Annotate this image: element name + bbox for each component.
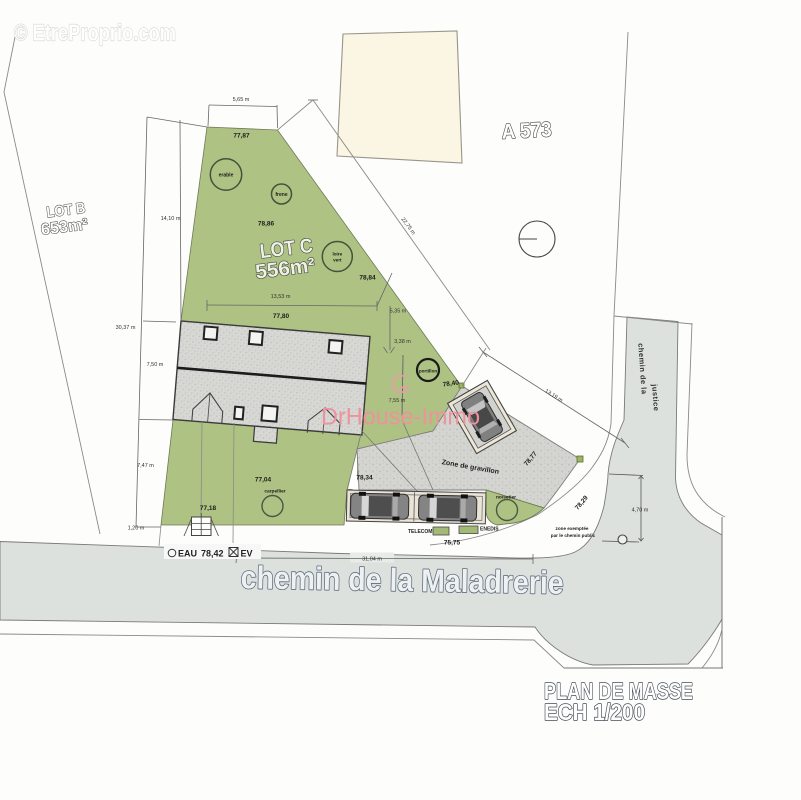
svg-text:portillon: portillon [419,369,438,374]
svg-text:7,47 m: 7,47 m [137,463,154,469]
svg-text:77,80: 77,80 [273,313,290,320]
svg-text:77,04: 77,04 [255,477,272,484]
svg-text:chemin de la Maladrerie: chemin de la Maladrerie [240,559,564,601]
svg-text:13,53 m: 13,53 m [271,294,291,300]
svg-text:A 573: A 573 [501,118,552,144]
svg-text:ENEDIS: ENEDIS [480,527,499,533]
svg-text:1,20 m: 1,20 m [128,526,145,532]
svg-text:4,70 m: 4,70 m [632,508,649,514]
svg-text:vert: vert [333,258,342,263]
svg-text:EAU: EAU [178,549,197,559]
svg-text:5,35 m: 5,35 m [390,309,407,315]
svg-text:loire: loire [332,252,342,257]
svg-text:3,38 m: 3,38 m [394,339,411,345]
svg-text:14,10 m: 14,10 m [161,216,181,222]
svg-text:carpellier: carpellier [264,489,285,495]
svg-text:noisetier: noisetier [496,495,516,501]
svg-text:30,37 m: 30,37 m [116,325,136,331]
svg-text:78,42: 78,42 [201,549,224,559]
svg-text:zone exemptée: zone exemptée [556,526,589,531]
svg-text:77,87: 77,87 [233,133,250,140]
svg-text:77,18: 77,18 [200,505,217,512]
svg-text:© EtreProprio.com: © EtreProprio.com [14,20,176,46]
svg-text:78,34: 78,34 [356,475,373,482]
svg-text:75,75: 75,75 [444,540,461,547]
svg-text:ECH 1/200: ECH 1/200 [544,699,645,725]
svg-text:EV: EV [241,549,253,559]
svg-text:erable: erable [219,173,234,179]
svg-text:TELECOM: TELECOM [408,529,432,535]
svg-text:78,84: 78,84 [359,275,376,282]
svg-text:5,65 m: 5,65 m [233,97,250,103]
svg-text:78,86: 78,86 [258,221,275,228]
svg-text:frene: frene [275,192,287,198]
svg-text:par le chemin public: par le chemin public [551,533,596,538]
svg-text:7,50 m: 7,50 m [147,362,164,368]
svg-text:DrHouse-Immo: DrHouse-Immo [321,404,480,431]
